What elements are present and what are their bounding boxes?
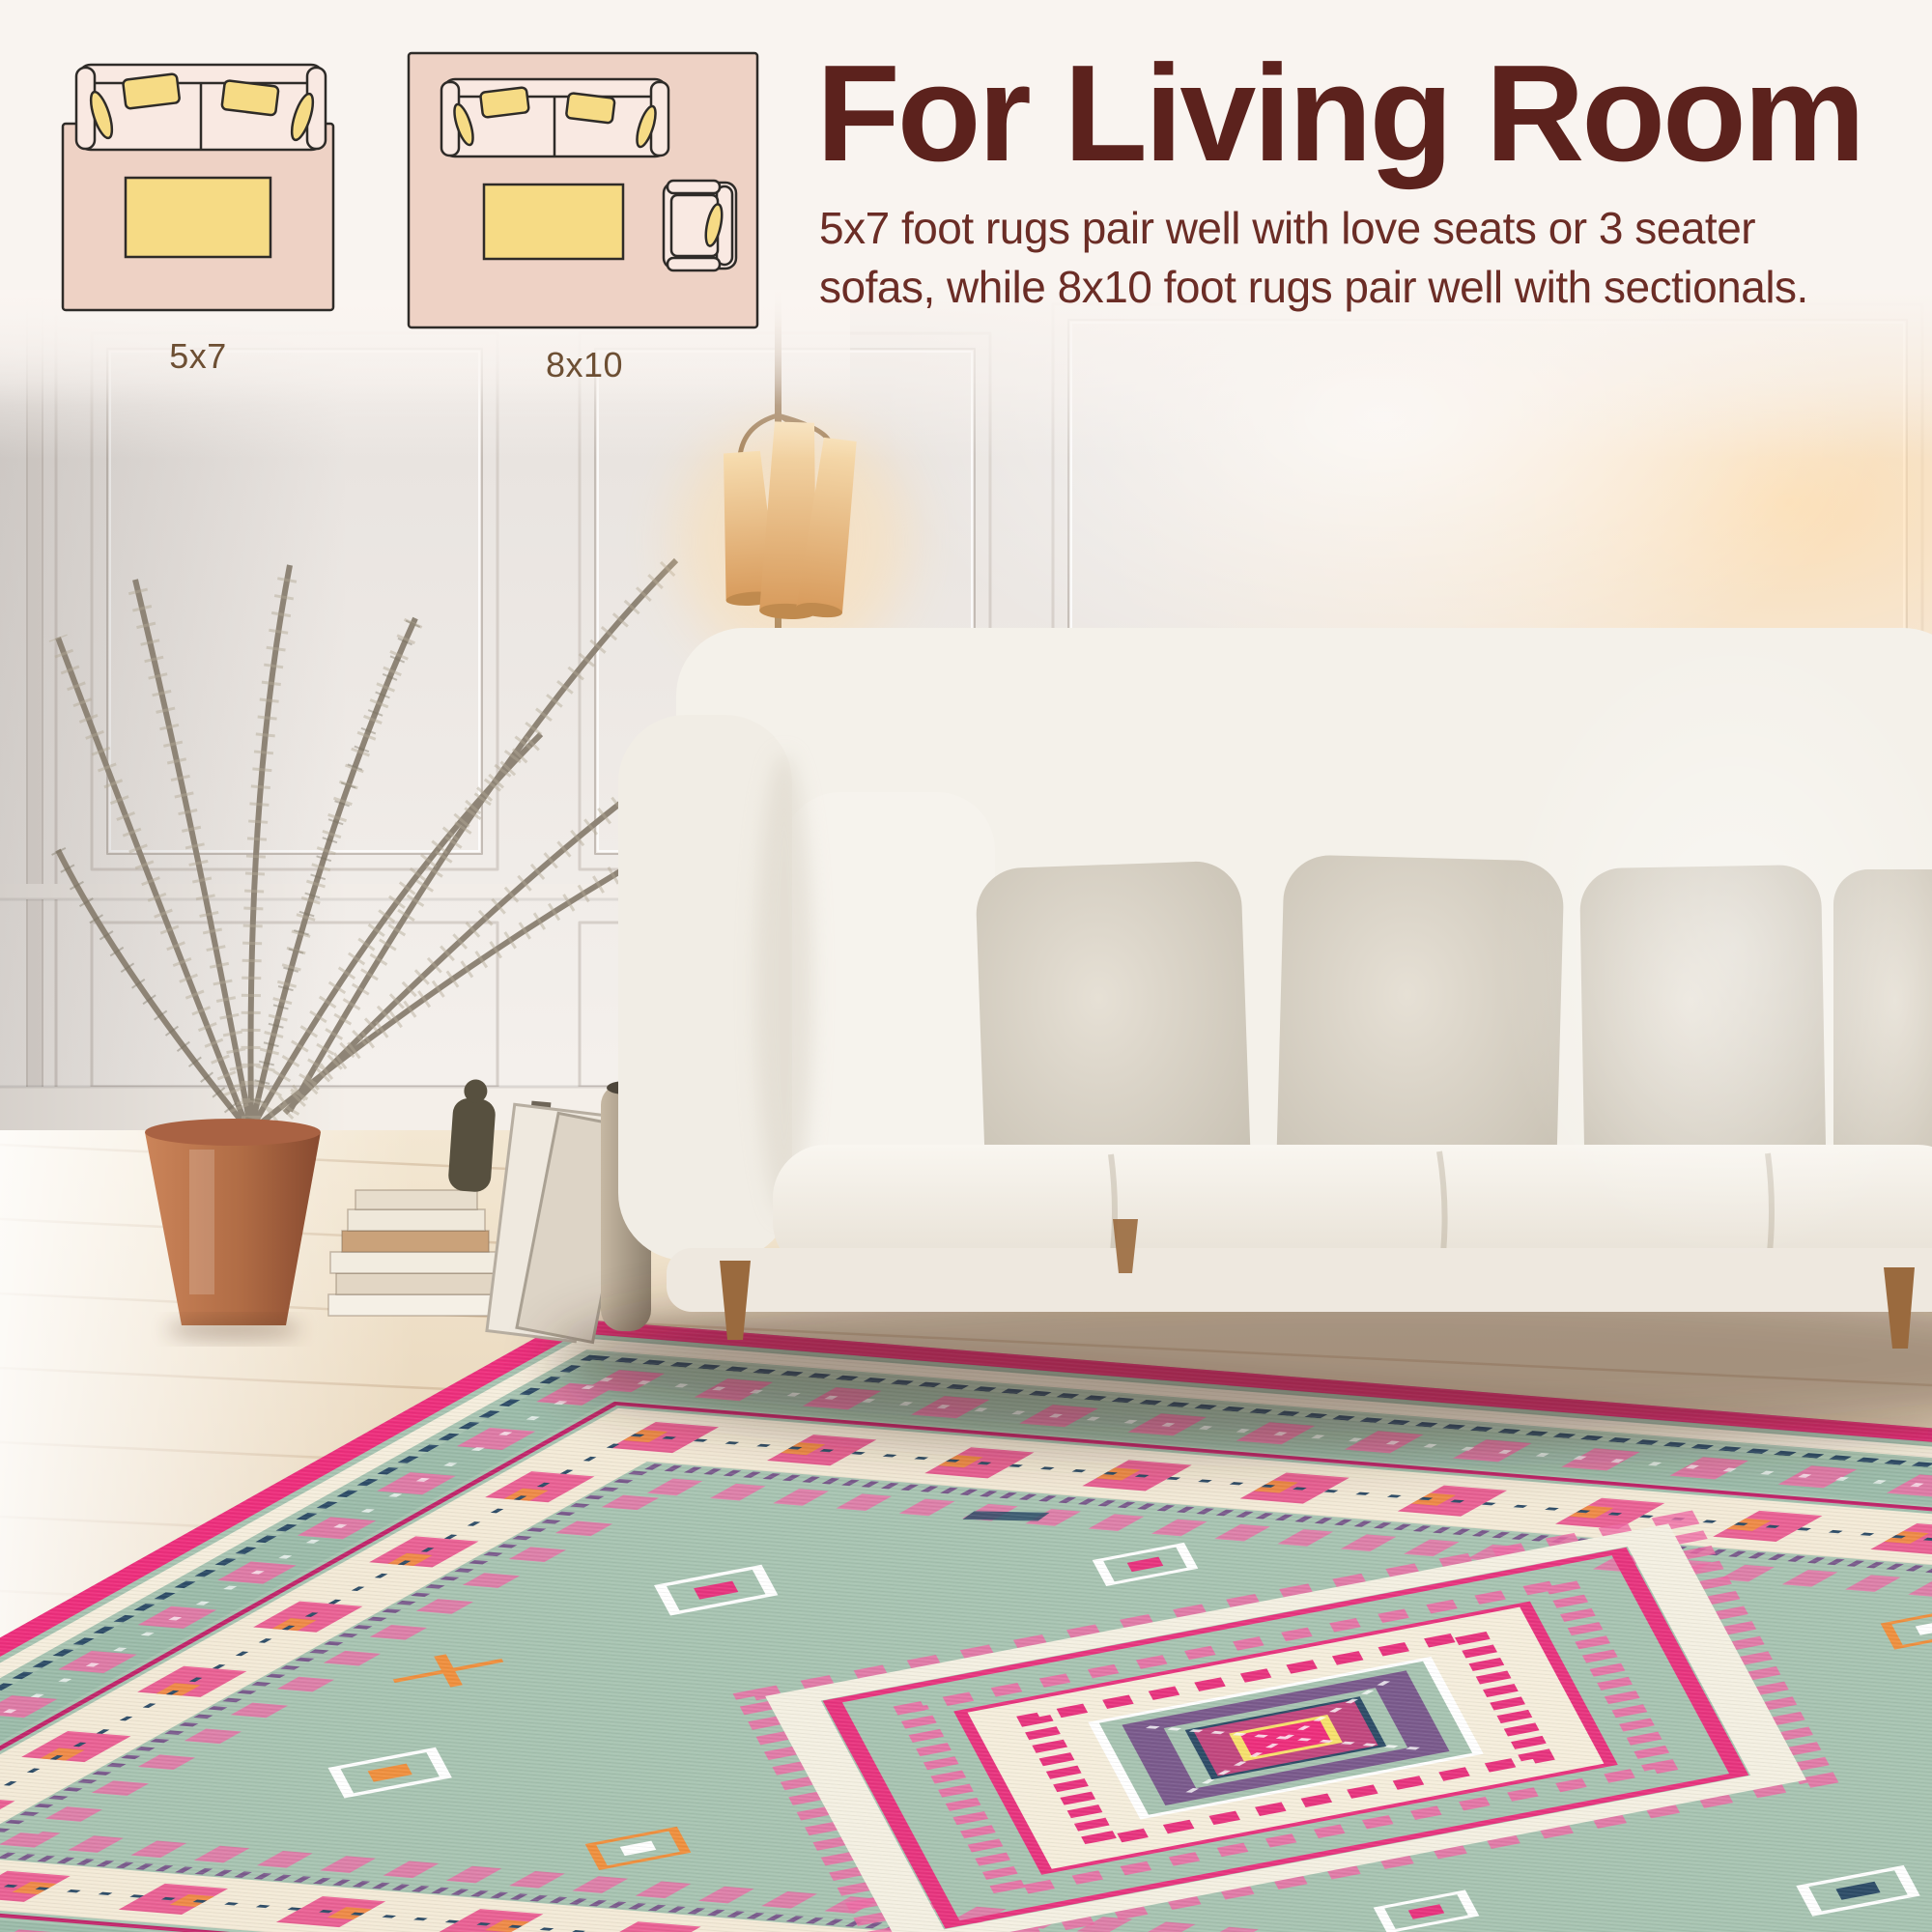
- description-text: 5x7 foot rugs pair well with love seats …: [819, 199, 1911, 317]
- diagram-5x7-drawing: [53, 39, 343, 328]
- book-stack: [328, 1190, 500, 1316]
- white-sofa: [618, 628, 1932, 1349]
- photo-top-fade-left: [0, 290, 850, 406]
- description-line-1: 5x7 foot rugs pair well with love seats …: [819, 199, 1911, 258]
- rug-outline-8x10: [409, 53, 757, 327]
- sofa-topview-icon: [76, 65, 326, 150]
- coffee-table-icon: [126, 178, 270, 257]
- page-title: For Living Room: [816, 39, 1918, 189]
- sofa-back-cushion: [782, 792, 995, 1198]
- description-line-2: sofas, while 8x10 foot rugs pair well wi…: [819, 258, 1911, 317]
- product-infographic: For Living Room 5x7 foot rugs pair well …: [0, 0, 1932, 1932]
- sofa-highlight: [1497, 628, 1932, 1265]
- living-room-photo: [0, 290, 1932, 1932]
- sofa-topview-icon: [441, 79, 668, 156]
- coffee-table-icon: [484, 185, 623, 259]
- rug-outline-5x7: [63, 124, 333, 310]
- armchair-topview-icon: [664, 181, 736, 270]
